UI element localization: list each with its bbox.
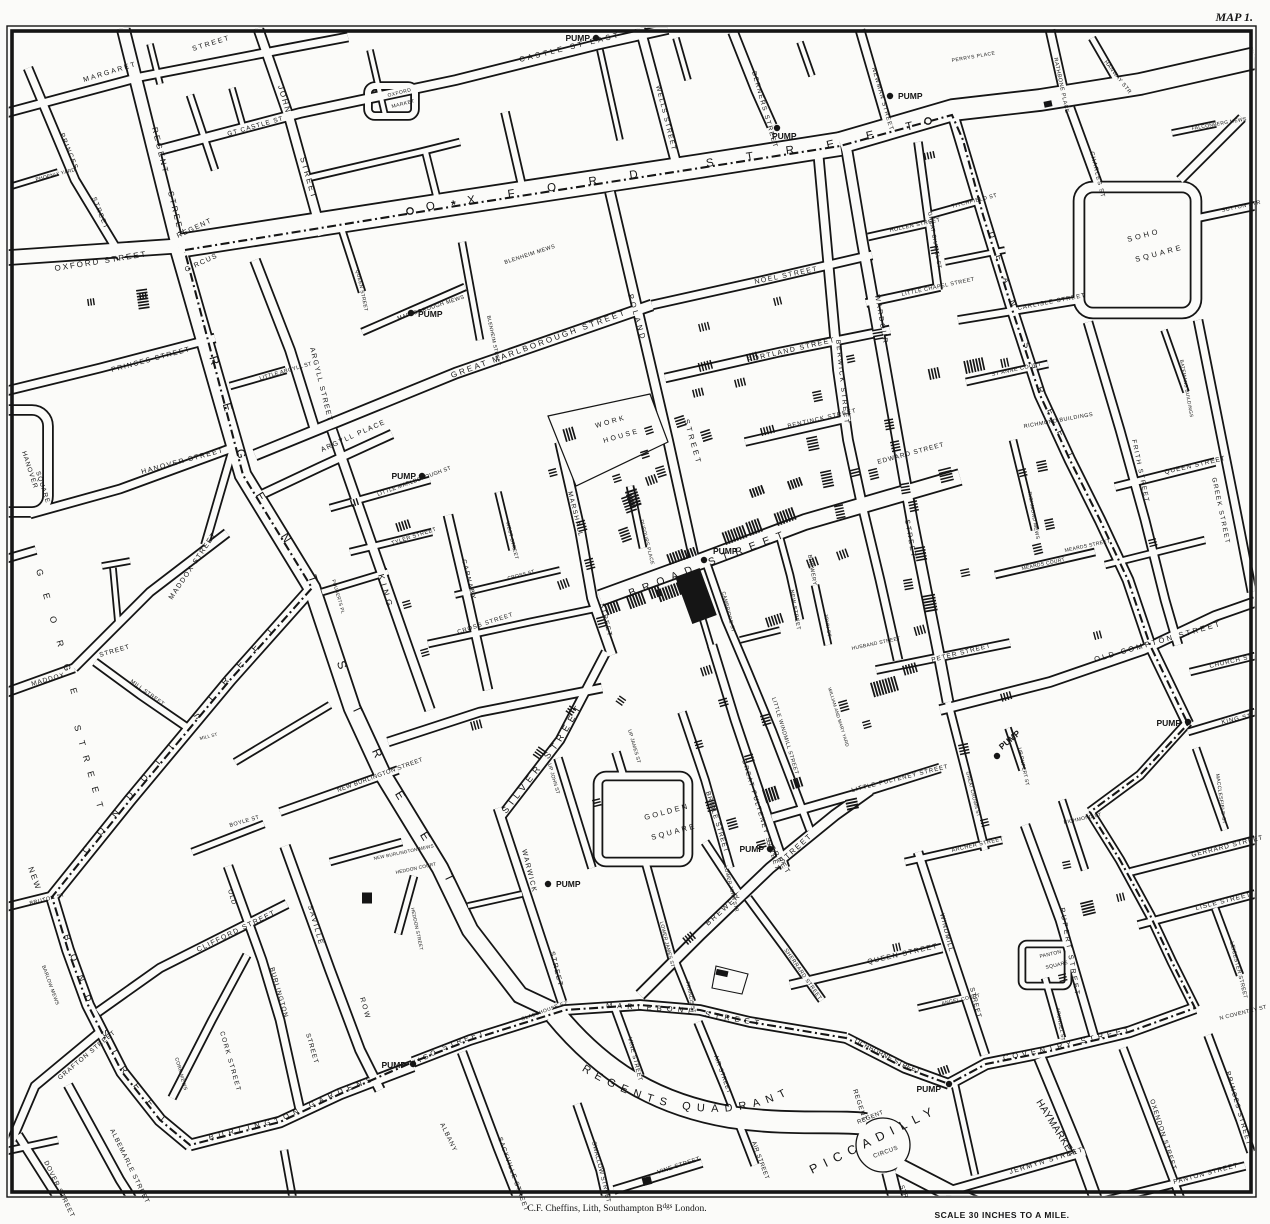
svg-text:PUMP: PUMP — [556, 879, 581, 889]
svg-text:PUMP: PUMP — [898, 91, 923, 101]
svg-text:PUMP: PUMP — [739, 844, 764, 854]
svg-text:PUMP: PUMP — [916, 1084, 941, 1094]
svg-text:C.F. Cheffins, Lith, Southampt: C.F. Cheffins, Lith, Southampton Bdgs Lo… — [527, 1202, 706, 1214]
svg-text:SCALE 30 INCHES TO A MILE.: SCALE 30 INCHES TO A MILE. — [934, 1210, 1069, 1220]
svg-text:MAP 1.: MAP 1. — [1214, 10, 1253, 24]
svg-text:PUMP: PUMP — [1156, 718, 1181, 728]
svg-text:PUMP: PUMP — [381, 1060, 406, 1070]
